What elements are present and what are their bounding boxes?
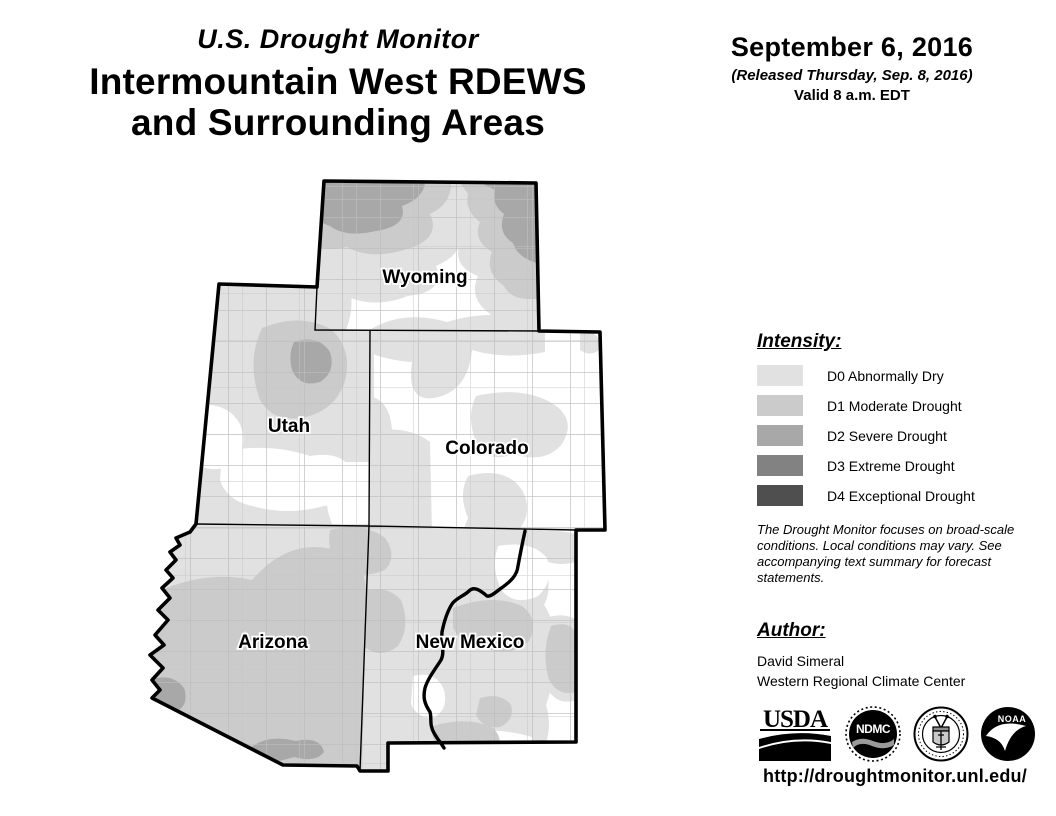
- agency-logos: USDA NDMC NOAA: [755, 702, 1037, 766]
- usda-logo: USDA: [755, 706, 835, 762]
- usda-logo-text: USDA: [763, 706, 828, 733]
- map-date: September 6, 2016: [712, 32, 992, 63]
- legend-row-d1: D1 Moderate Drought: [757, 395, 1047, 416]
- title-block: U.S. Drought Monitor Intermountain West …: [28, 24, 648, 143]
- d0-swatch: [757, 365, 803, 386]
- author-heading: Author:: [757, 620, 1047, 642]
- legend-heading: Intensity:: [757, 331, 1047, 353]
- state-label-arizona: Arizona: [238, 632, 308, 653]
- legend-row-d4: D4 Exceptional Drought: [757, 485, 1047, 506]
- noaa-logo-text: NOAA: [998, 714, 1027, 724]
- legend-items: D0 Abnormally Dry D1 Moderate Drought D2…: [757, 365, 1047, 506]
- disclaimer-text: The Drought Monitor focuses on broad-sca…: [757, 522, 1033, 586]
- drought-map: Wyoming Utah Colorado Arizona New Mexico: [130, 165, 655, 783]
- commerce-seal-logo: [912, 705, 970, 763]
- d1-label: D1 Moderate Drought: [827, 398, 962, 414]
- state-label-colorado: Colorado: [445, 438, 528, 459]
- d2-label: D2 Severe Drought: [827, 428, 947, 444]
- drought-monitor-page: U.S. Drought Monitor Intermountain West …: [0, 0, 1056, 816]
- author-org: Western Regional Climate Center: [757, 671, 1047, 691]
- ndmc-logo: NDMC: [844, 705, 902, 763]
- legend-row-d3: D3 Extreme Drought: [757, 455, 1047, 476]
- ndmc-logo-text: NDMC: [856, 722, 891, 736]
- intensity-legend: Intensity: D0 Abnormally Dry D1 Moderate…: [757, 331, 1047, 515]
- legend-row-d0: D0 Abnormally Dry: [757, 365, 1047, 386]
- valid-time: Valid 8 a.m. EDT: [712, 87, 992, 104]
- noaa-logo: NOAA: [979, 705, 1037, 763]
- page-title-line1: Intermountain West RDEWS: [28, 61, 648, 102]
- d3-label: D3 Extreme Drought: [827, 458, 955, 474]
- state-label-new-mexico: New Mexico: [416, 632, 525, 653]
- drought-map-svg: Wyoming Utah Colorado Arizona New Mexico: [130, 165, 655, 783]
- author-name: David Simeral: [757, 651, 1047, 671]
- kicker-title: U.S. Drought Monitor: [28, 24, 648, 55]
- released-date: (Released Thursday, Sep. 8, 2016): [712, 67, 992, 84]
- d0-label: D0 Abnormally Dry: [827, 368, 944, 384]
- state-label-wyoming: Wyoming: [382, 267, 467, 288]
- page-title: Intermountain West RDEWS and Surrounding…: [28, 61, 648, 143]
- legend-row-d2: D2 Severe Drought: [757, 425, 1047, 446]
- d3-swatch: [757, 455, 803, 476]
- page-title-line2: and Surrounding Areas: [28, 102, 648, 143]
- d4-swatch: [757, 485, 803, 506]
- d2-swatch: [757, 425, 803, 446]
- site-url: http://droughtmonitor.unl.edu/: [745, 766, 1045, 787]
- state-label-utah: Utah: [268, 416, 310, 437]
- d4-label: D4 Exceptional Drought: [827, 488, 975, 504]
- author-block: Author: David Simeral Western Regional C…: [757, 620, 1047, 691]
- date-block: September 6, 2016 (Released Thursday, Se…: [712, 32, 992, 104]
- d1-swatch: [757, 395, 803, 416]
